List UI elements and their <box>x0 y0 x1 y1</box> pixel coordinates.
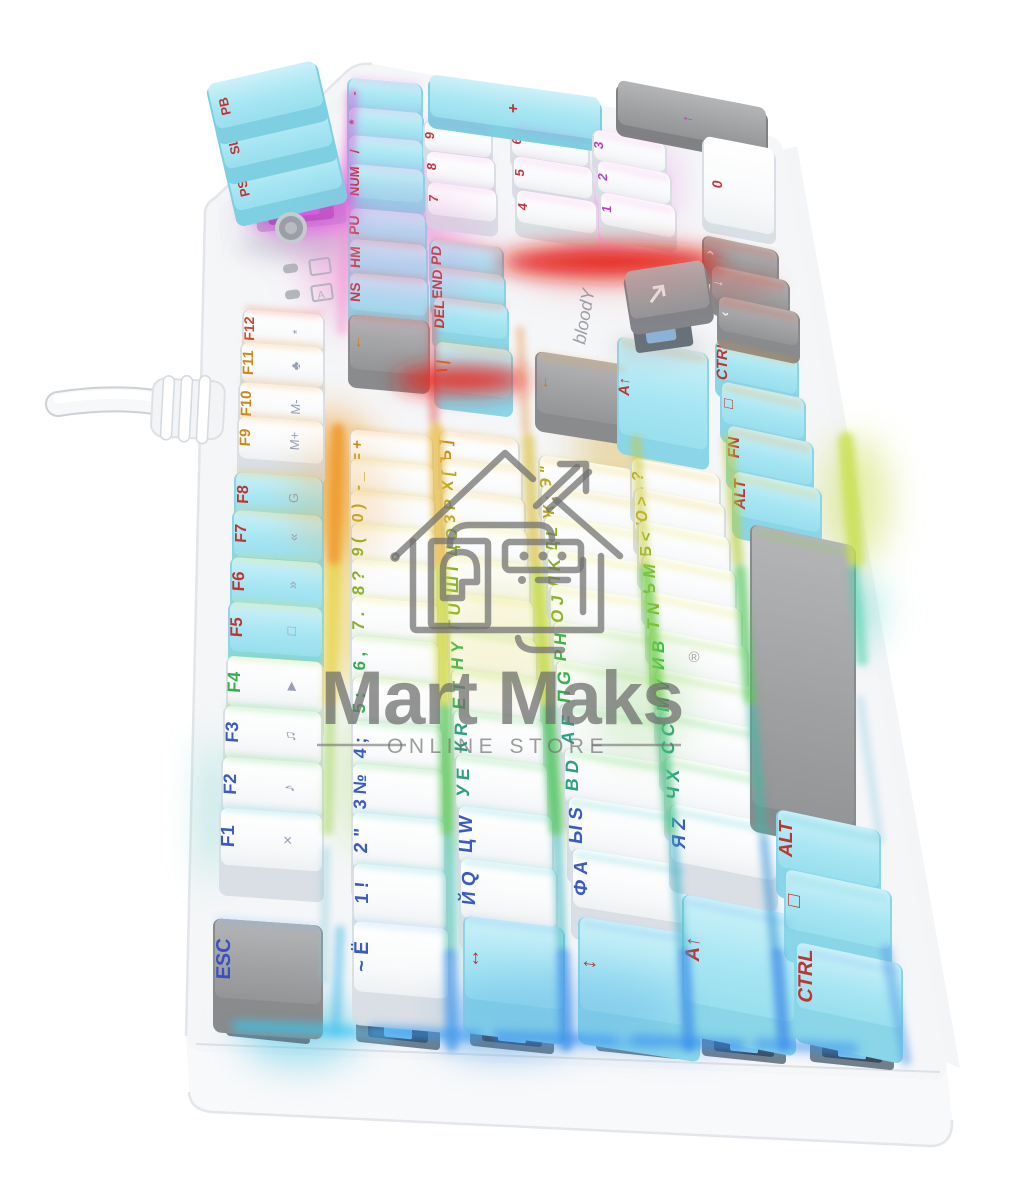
svg-text:↔: ↔ <box>462 947 484 970</box>
svg-text:►: ► <box>283 678 300 694</box>
svg-text:←: ← <box>348 334 365 350</box>
svg-text:F8: F8 <box>235 484 252 504</box>
svg-text:F5: F5 <box>227 617 246 638</box>
svg-text:Ц W: Ц W <box>456 814 477 854</box>
svg-text:□: □ <box>283 626 299 636</box>
svg-text:У E: У E <box>453 767 473 798</box>
svg-text:Mart Maks: Mart Maks <box>321 656 684 741</box>
svg-text:Й Q: Й Q <box>458 870 480 907</box>
svg-text:M+: M+ <box>287 431 302 450</box>
svg-text:F1: F1 <box>218 824 239 848</box>
svg-text:ESC: ESC <box>213 938 235 981</box>
svg-text:A↑: A↑ <box>616 376 633 398</box>
svg-text:3 №: 3 № <box>350 773 370 810</box>
svg-text:F6: F6 <box>229 571 248 592</box>
svg-text:F9: F9 <box>237 428 254 447</box>
svg-text:8 ?: 8 ? <box>349 570 368 596</box>
svg-text:F7: F7 <box>233 523 250 543</box>
svg-text:F2: F2 <box>220 773 240 795</box>
svg-text:7 .: 7 . <box>349 611 368 632</box>
svg-text:F4: F4 <box>224 671 244 693</box>
svg-text:←: ← <box>535 373 552 391</box>
svg-text:ALT: ALT <box>776 819 797 859</box>
svg-text:♣: ♣ <box>288 361 303 371</box>
svg-text:®: ® <box>688 649 699 666</box>
svg-text:F3: F3 <box>222 721 242 743</box>
svg-text:В D: В D <box>562 758 582 792</box>
svg-text:F12: F12 <box>241 316 257 341</box>
svg-text:♫: ♫ <box>282 730 299 742</box>
svg-text:M-: M- <box>288 399 303 415</box>
svg-text:×: × <box>280 835 297 846</box>
svg-text:+: + <box>508 99 517 118</box>
svg-text:»: » <box>284 580 300 589</box>
svg-text:2 ": 2 " <box>351 827 372 854</box>
svg-text:«: « <box>285 532 301 541</box>
svg-text:~ Ё: ~ Ё <box>350 940 373 973</box>
svg-text:F11: F11 <box>240 349 257 375</box>
svg-text:CTRL: CTRL <box>795 947 817 1005</box>
svg-text:F10: F10 <box>238 390 255 417</box>
svg-text:Ы S: Ы S <box>566 806 587 846</box>
svg-text:←: ← <box>681 107 695 126</box>
svg-text:1 !: 1 ! <box>352 881 373 905</box>
svg-text:ONLINE STORE: ONLINE STORE <box>387 735 609 758</box>
svg-text:Ф A: Ф A <box>571 859 592 898</box>
svg-text:♪: ♪ <box>281 784 298 793</box>
